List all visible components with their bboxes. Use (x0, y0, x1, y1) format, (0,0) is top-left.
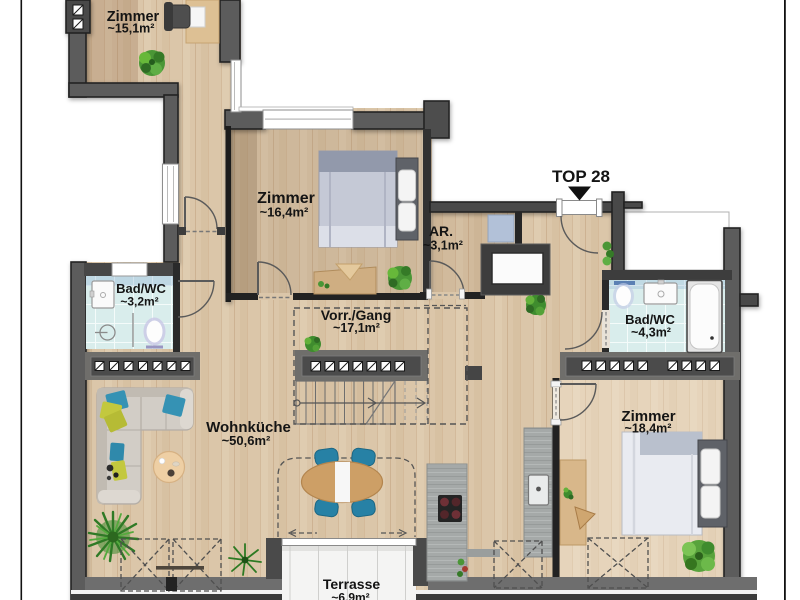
svg-text:~50,6m²: ~50,6m² (222, 433, 271, 448)
svg-text:~3,1m²: ~3,1m² (423, 239, 463, 253)
svg-text:~16,4m²: ~16,4m² (260, 205, 309, 220)
svg-text:~17,1m²: ~17,1m² (333, 321, 380, 335)
svg-text:~4,3m²: ~4,3m² (631, 326, 671, 340)
svg-text:TOP 28: TOP 28 (552, 167, 610, 186)
svg-text:~15,1m²: ~15,1m² (108, 22, 155, 36)
svg-text:AR.: AR. (429, 223, 453, 239)
svg-text:~18,4m²: ~18,4m² (625, 422, 672, 436)
svg-text:~6,9m²: ~6,9m² (331, 591, 369, 600)
svg-text:~3,2m²: ~3,2m² (120, 295, 158, 309)
